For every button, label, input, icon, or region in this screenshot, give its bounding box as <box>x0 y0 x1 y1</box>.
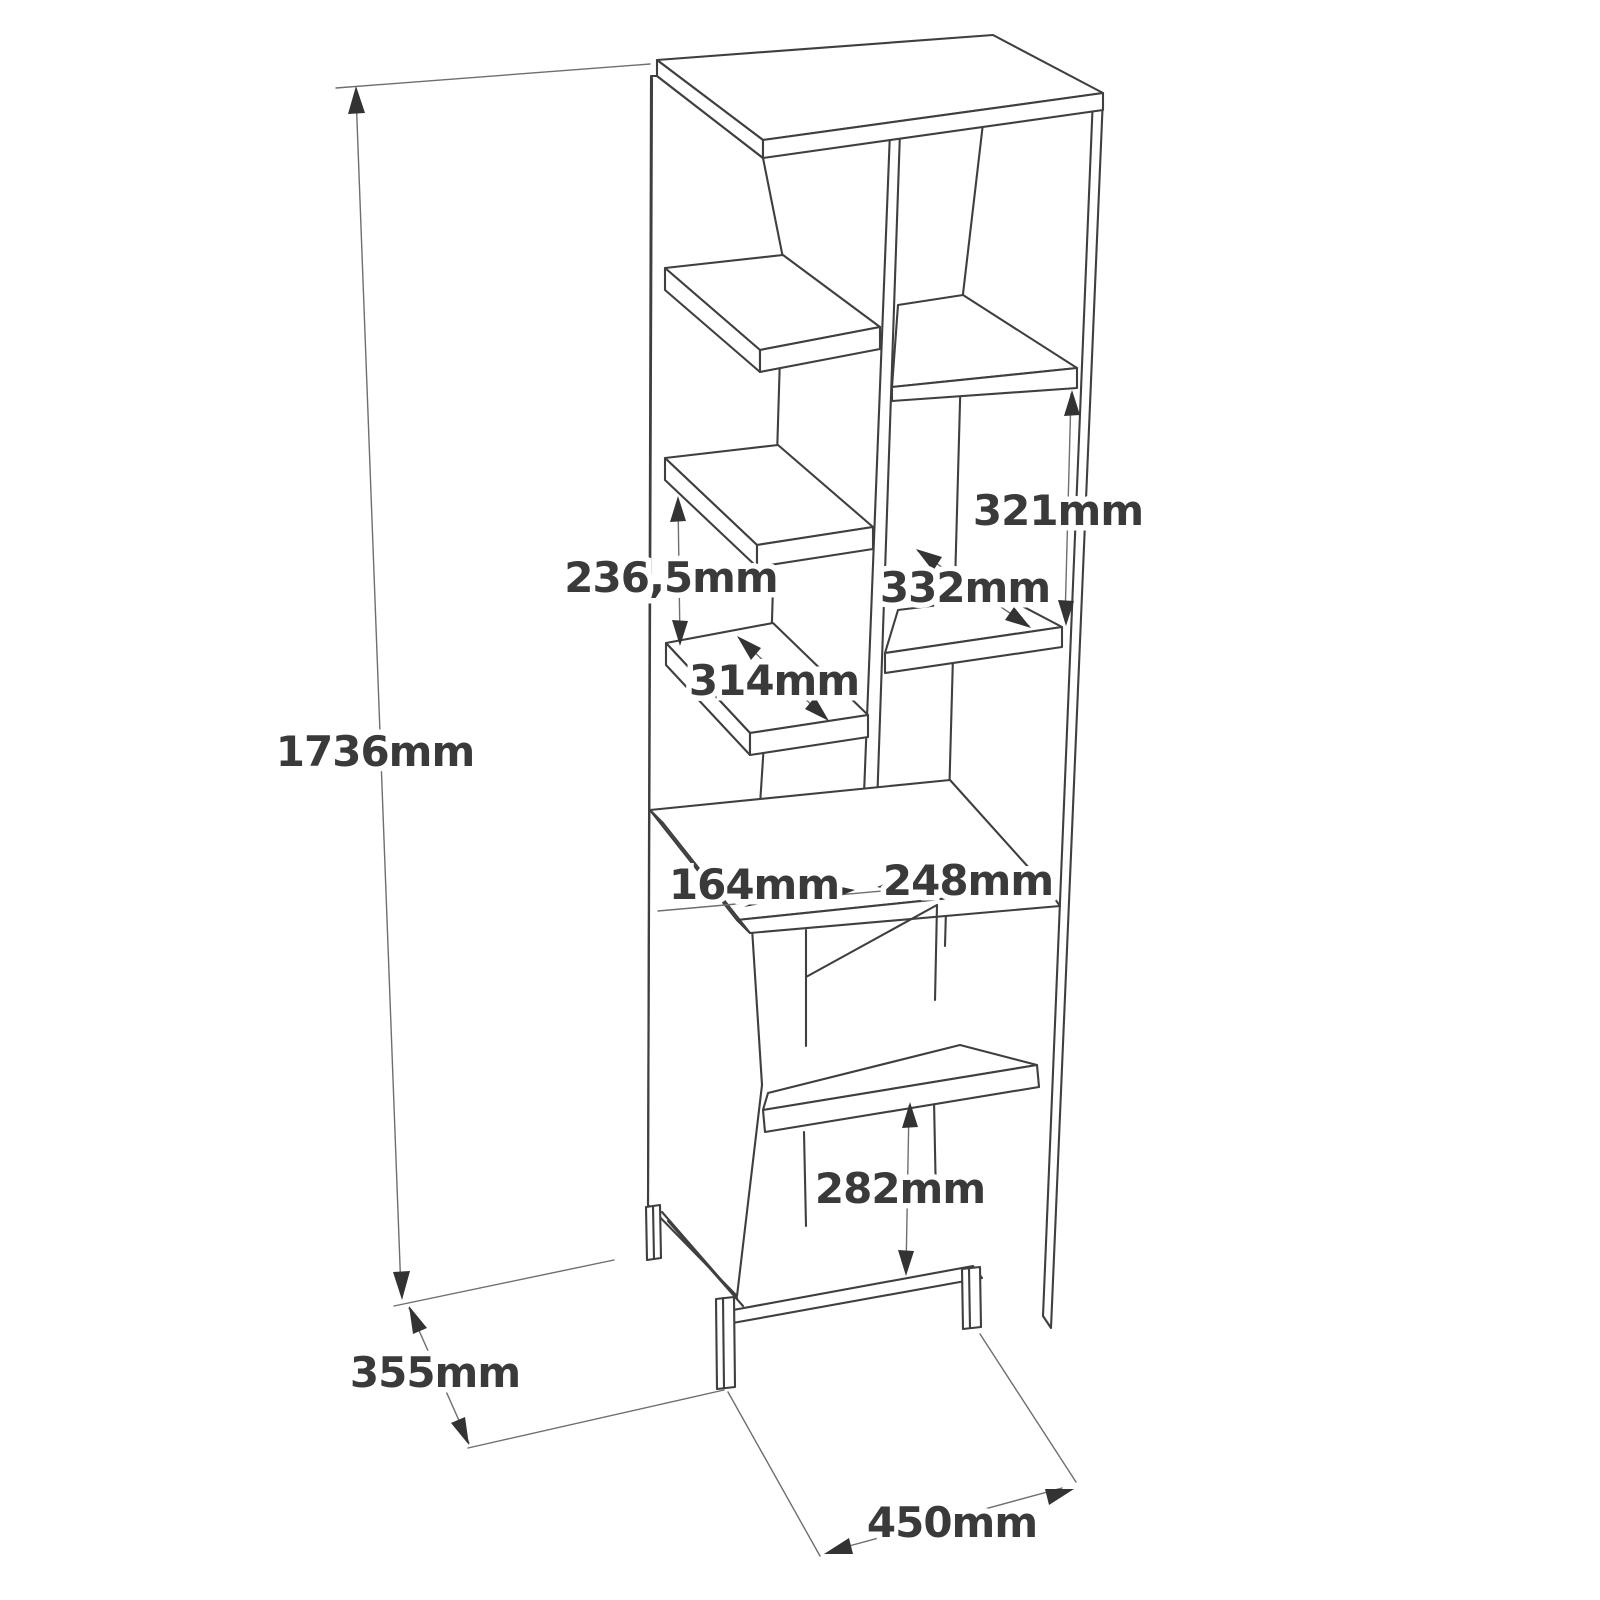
label-depth: 355mm <box>350 1348 520 1397</box>
label-right-bay-shelf-depth: 332mm <box>880 563 1050 612</box>
arrow-depth-bottom <box>451 1417 469 1445</box>
arrow-width-left <box>824 1538 853 1554</box>
label-left-bay-shelf-depth: 314mm <box>689 656 859 705</box>
arrow-height-top <box>348 86 365 114</box>
label-left-bay-shelf-gap: 236,5mm <box>564 553 777 602</box>
arrow-height-bottom <box>393 1271 410 1300</box>
dimension-diagram: 1736mm 236,5mm 314mm 321mm 332mm 164mm 2… <box>0 0 1600 1600</box>
shelf-unit-drawing: 1736mm 236,5mm 314mm 321mm 332mm 164mm 2… <box>0 0 1600 1600</box>
leg-front-right <box>962 1267 981 1329</box>
dim-line-height <box>356 94 401 1292</box>
ext-line-bottom-left <box>394 1260 614 1306</box>
ext-line-width-left <box>728 1392 820 1556</box>
ext-line-depth-front <box>468 1390 724 1448</box>
arrow-depth-top <box>409 1306 427 1334</box>
label-total-height: 1736mm <box>276 727 474 776</box>
ext-line-top <box>336 64 650 88</box>
arrow-282-bottom <box>898 1250 914 1276</box>
right-side-panel <box>1043 97 1103 1328</box>
label-right-opening-width: 248mm <box>883 856 1053 905</box>
lower-cabinet-shelf <box>763 1045 1039 1132</box>
divider-left-edge <box>860 132 890 896</box>
label-right-bay-shelf-gap: 321mm <box>973 486 1143 535</box>
label-lower-cabinet-shelf-gap: 282mm <box>815 1164 985 1213</box>
divider-right-edge <box>874 132 900 894</box>
leg-front-left <box>716 1297 735 1389</box>
arrow-321-top <box>1064 390 1080 416</box>
ext-line-width-right <box>980 1334 1076 1482</box>
label-left-opening-width: 164mm <box>669 860 839 909</box>
label-width: 450mm <box>867 1498 1037 1547</box>
right-bay-shelf-upper <box>892 295 1077 401</box>
arrow-width-right <box>1045 1489 1074 1505</box>
